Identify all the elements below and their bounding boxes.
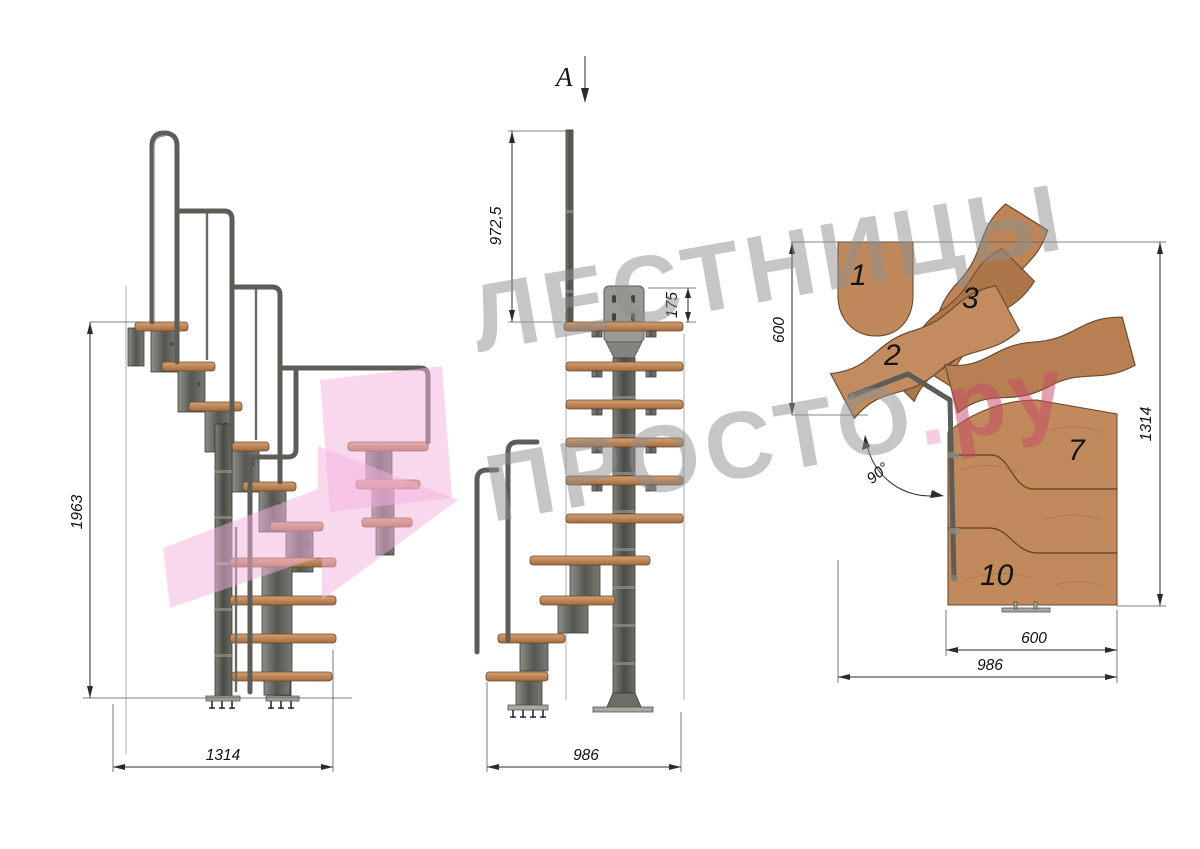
watermark-line2-word: ПРОСТО <box>477 363 925 543</box>
dimension-plan-total-length: 1314 <box>1117 242 1166 606</box>
section-arrow-icon <box>581 88 589 103</box>
base-plate <box>508 705 548 710</box>
dim-plan-overall-label: 986 <box>977 657 1003 674</box>
wall-bracket <box>128 328 144 366</box>
base-plate <box>206 696 240 701</box>
column-base-flare <box>607 693 641 707</box>
dim-side-length-label: 1314 <box>206 747 241 764</box>
staircase-drawing: 1963 1314 A 972,5 <box>0 0 1200 849</box>
dim-post-height-label: 972,5 <box>488 206 505 245</box>
section-marker: A <box>554 56 589 103</box>
dimension-side-height: 1963 <box>69 322 140 698</box>
section-label: A <box>554 62 573 92</box>
dim-front-length-label: 986 <box>573 747 599 764</box>
anchor-bolts <box>510 710 546 718</box>
watermark-suffix: ру <box>939 336 1077 462</box>
dim-plan-total-length-label: 1314 <box>1138 406 1155 441</box>
drawing-canvas: 1963 1314 A 972,5 <box>0 0 1200 849</box>
dim-side-height-label: 1963 <box>69 494 86 529</box>
dim-plan-lower-width-label: 600 <box>1021 630 1047 647</box>
anchor-bolts <box>209 701 294 709</box>
base-plate <box>266 696 299 701</box>
base-plate <box>593 707 653 712</box>
dimension-plan-lower-width: 600 <box>946 610 1117 683</box>
plan-step-number-10: 10 <box>980 559 1014 592</box>
